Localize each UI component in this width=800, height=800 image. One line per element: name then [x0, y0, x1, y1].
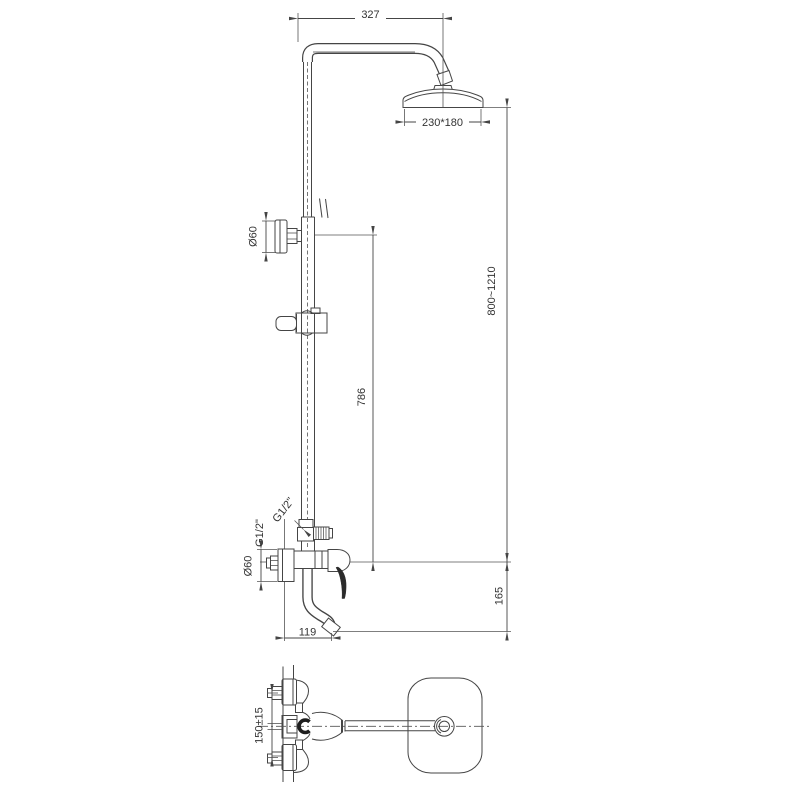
top-view: 150±15: [254, 665, 491, 782]
shower-arm: [308, 49, 446, 75]
dimension-786: 786: [315, 235, 377, 562]
dim-arm-width-label: 327: [361, 9, 379, 21]
shower-technical-drawing: 327 230*180 800~1210 786 165: [0, 0, 800, 800]
plan-shower-head: [408, 678, 482, 773]
dim-escutcheon-diameter-label: Ø60: [243, 556, 255, 577]
label-inlet-thread: G1/2": [254, 519, 266, 547]
front-view: 327 230*180 800~1210 786 165: [243, 8, 512, 641]
dim-inlet-spacing-label: 150±15: [254, 707, 266, 744]
dimension-800-1210: 800~1210: [483, 108, 511, 563]
break-marks: [320, 199, 329, 219]
label-diverter-thread: G1/2": [270, 495, 303, 529]
dim-riser-length-label: 786: [356, 388, 368, 406]
dim-spout-reach-label: 119: [299, 627, 317, 639]
dim-head-size-label: 230*180: [422, 117, 463, 129]
diverter-knob: [314, 527, 333, 540]
dimension-327: 327: [298, 8, 443, 42]
dimension-inlet-spacing: 150±15: [254, 693, 279, 758]
label-diverter-thread-text: G1/2": [270, 495, 297, 524]
label-inlet-thread-text: G1/2": [254, 519, 266, 547]
dimension-230x180: 230*180: [405, 109, 482, 129]
dimension-bracket-diameter: Ø60: [248, 221, 277, 253]
dim-spout-drop-label: 165: [494, 587, 506, 605]
dim-bracket-diameter-label: Ø60: [248, 226, 260, 247]
dimension-165: 165: [333, 562, 511, 632]
riser-pipe: [302, 57, 315, 551]
wall-bracket: [275, 220, 302, 253]
dim-overall-height-label: 800~1210: [486, 266, 498, 315]
